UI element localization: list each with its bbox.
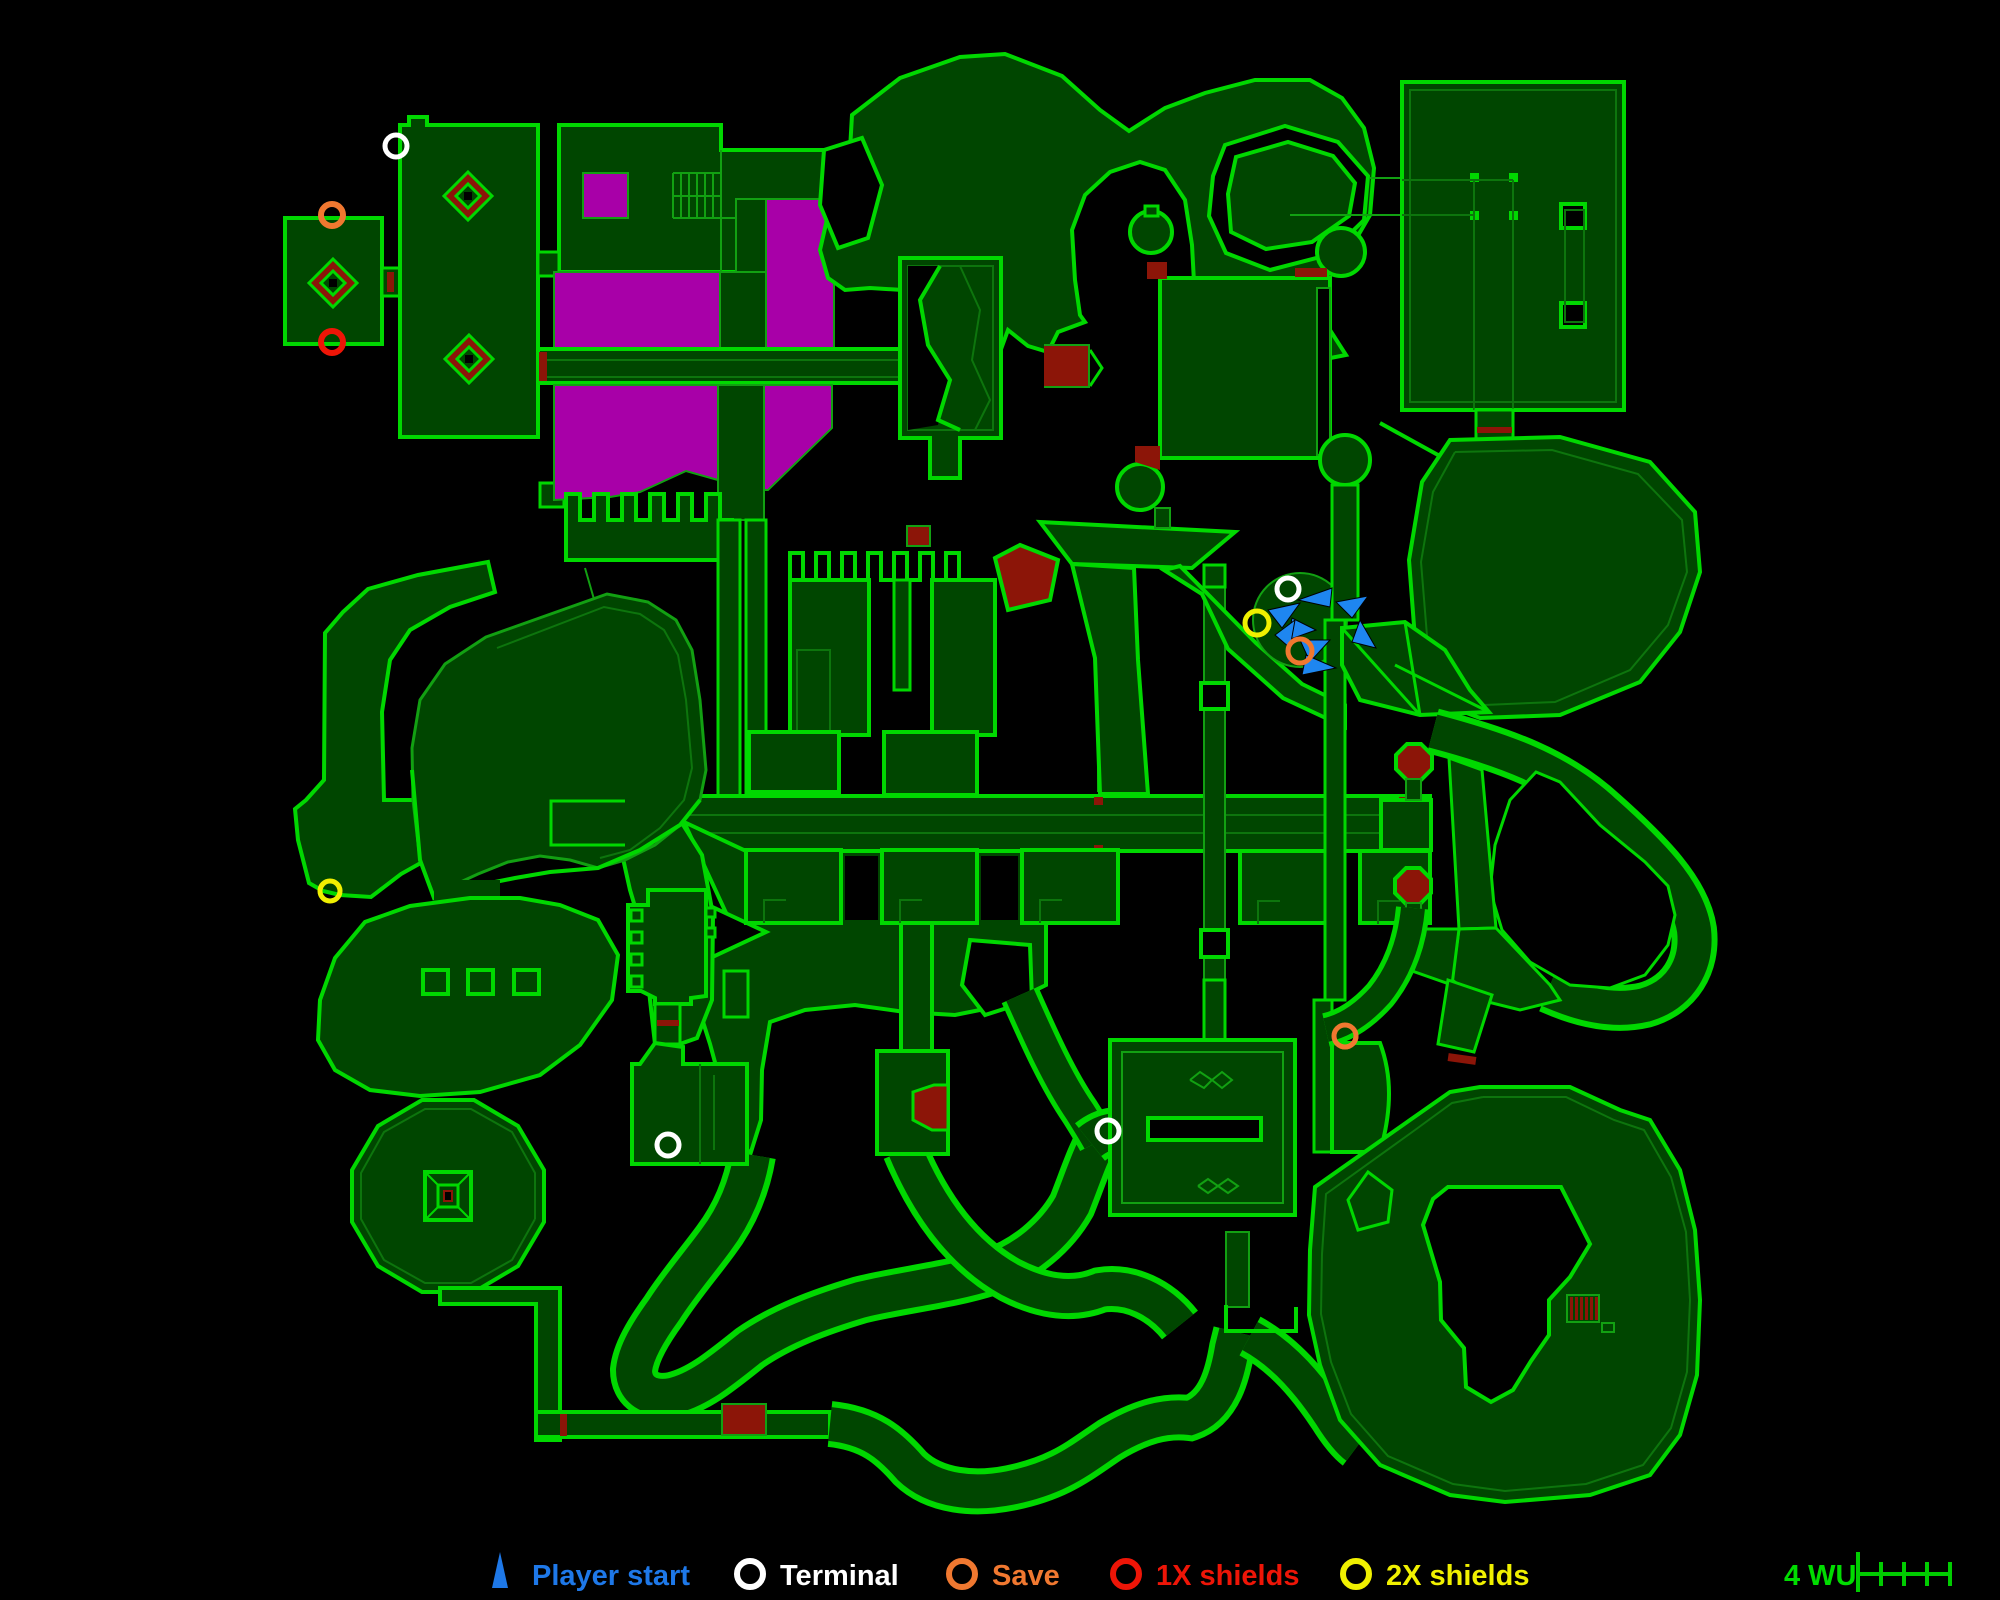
svg-text:2X shields: 2X shields xyxy=(1386,1560,1529,1592)
svg-text:Player start: Player start xyxy=(532,1560,690,1592)
svg-text:1X shields: 1X shields xyxy=(1156,1560,1299,1592)
svg-text:4 WU: 4 WU xyxy=(1784,1560,1857,1592)
svg-text:Terminal: Terminal xyxy=(780,1560,899,1592)
svg-text:Save: Save xyxy=(992,1560,1060,1592)
